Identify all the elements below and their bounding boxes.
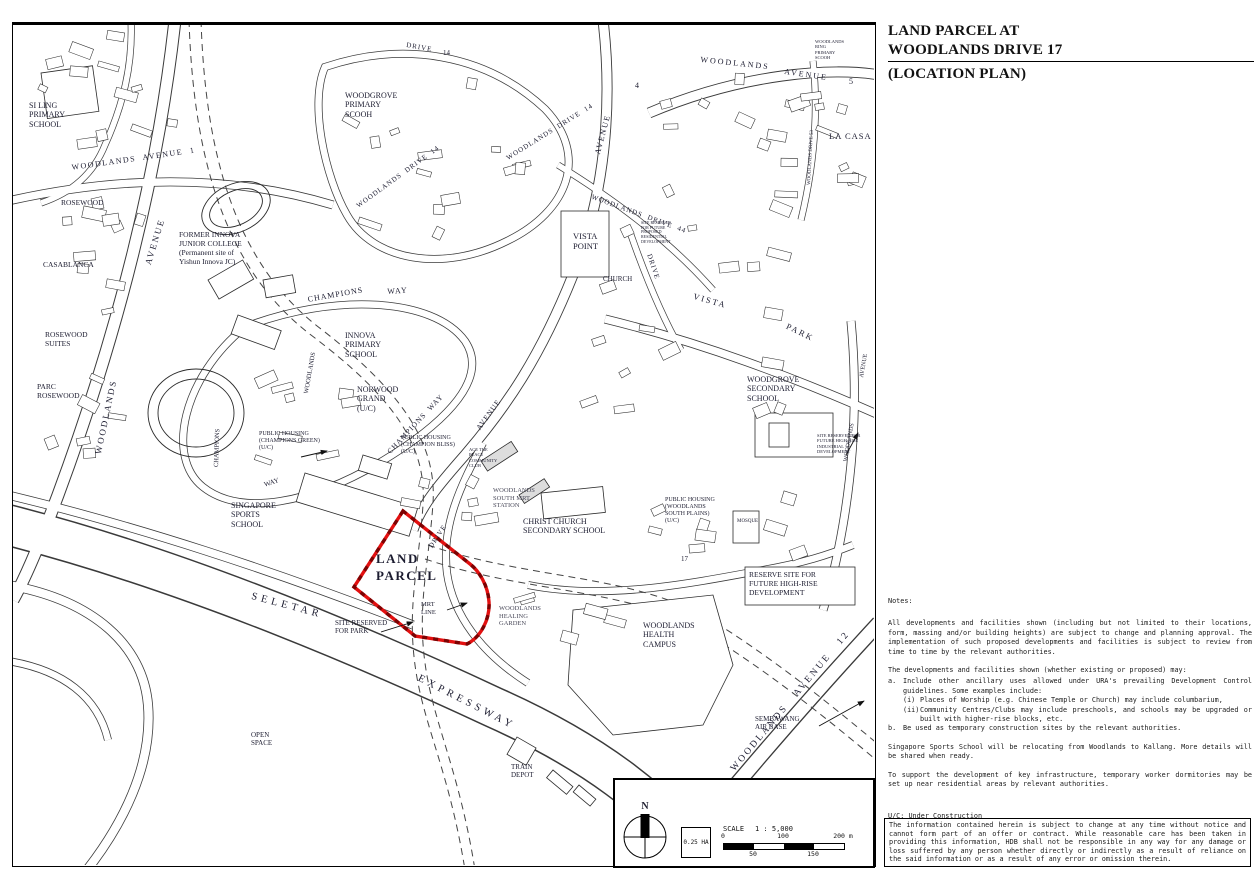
title-line2: WOODLANDS DRIVE 17 (888, 41, 1254, 62)
map-label-woodlands: WOODLANDS (93, 379, 119, 456)
map-label-woodgrove: WOODGROVE PRIMARY SCOOH (345, 91, 397, 119)
map-label-la-casa: LA CASA (829, 131, 872, 141)
map-label-land: LAND PARCEL (376, 551, 437, 585)
scale-bar (723, 843, 845, 850)
map-label-woodlands-drive-44: WOODLANDS DRIVE 44 (590, 193, 687, 235)
scale-tick-0: 0 (721, 832, 725, 840)
scale-tick-200m: 200 m (833, 832, 853, 840)
map-label-mrt: MRT LINE (421, 601, 436, 616)
map-label-vista: VISTA (692, 291, 728, 310)
map-label-14: 14 (443, 49, 450, 57)
map-label-site-reserved-for: SITE RESERVED FOR FUTURE HIGH-RISE INDUS… (817, 433, 860, 454)
map-label-si-ling: SI LING PRIMARY SCHOOL (29, 101, 65, 129)
map-label-avenue: AVENUE (784, 67, 829, 82)
map-label-woodlands: WOODLANDS SOUTH MRT STATION (493, 487, 535, 510)
map-label-singapore: SINGAPORE SPORTS SCHOOL (231, 501, 276, 529)
notes-para4: To support the development of key infras… (888, 771, 1252, 790)
map-label-public-housing: PUBLIC HOUSING (CHAMPION BLISS) (U/C) (401, 435, 455, 456)
scale-tick-150: 150 (807, 850, 819, 858)
map-label-woodlands-avenue-1: WOODLANDS AVENUE 1 (71, 146, 196, 173)
map-label-woodlands: WOODLANDS RING PRIMARY SCOOH (815, 39, 844, 60)
scale-tick-100: 100 (777, 832, 789, 840)
map-panel: SI LING PRIMARY SCHOOLWOODLANDS AVENUE 1… (12, 22, 876, 867)
map-label-woodlands: WOODLANDS HEALTH CAMPUS (643, 621, 695, 649)
location-plan-page: SI LING PRIMARY SCHOOLWOODLANDS AVENUE 1… (0, 0, 1254, 869)
notes-item-a-i: (i) Places of Worship (e.g. Chinese Temp… (903, 696, 1252, 705)
notes-item-b: b. Be used as temporary construction sit… (888, 724, 1252, 733)
disclaimer-box: The information contained herein is subj… (884, 818, 1251, 867)
map-label-woodlands-drive-14: WOODLANDS DRIVE 14 (355, 144, 441, 210)
map-label-former-innova: FORMER INNOVA JUNIOR COLLEGE (Permanent … (179, 231, 242, 266)
map-label-church: CHURCH (603, 275, 632, 283)
map-label-rosewood: ROSEWOOD (61, 199, 104, 208)
notes-para1: All developments and facilities shown (i… (888, 619, 1252, 657)
map-label-4: 4 (635, 81, 639, 90)
title-line1: LAND PARCEL AT (888, 22, 1254, 41)
parcel-area-box: 0.25 HA (681, 827, 711, 858)
map-label-drive: DRIVE (406, 41, 433, 54)
map-label-woodlands: WOODLANDS HEALING GARDEN (499, 605, 541, 628)
north-label: N (641, 801, 648, 812)
map-label-5: 5 (849, 77, 853, 86)
page-title: LAND PARCEL AT WOODLANDS DRIVE 17 (LOCAT… (888, 22, 1254, 84)
notes-para3: Singapore Sports School will be relocati… (888, 743, 1252, 762)
scale-tick-50: 50 (749, 850, 757, 858)
map-label-woodlands-drive-14: WOODLANDS DRIVE 14 (505, 102, 595, 162)
map-label-seletar: SELETAR (250, 591, 324, 622)
map-label-avenue: AVENUE (143, 217, 167, 266)
map-label-ace-the: ACE THE PLACE COMMUNITY CLUB (469, 447, 497, 468)
notes-section: Notes: All developments and facilities s… (888, 597, 1252, 830)
map-label-avenue: AVENUE (593, 114, 613, 156)
map-label-way: WAY (263, 476, 280, 489)
map-label-drive: DRIVE (645, 253, 661, 281)
map-label-parc: PARC ROSEWOOD (37, 383, 80, 401)
map-label-avenue: AVENUE (859, 353, 870, 378)
map-label-casablanca: CASABLANCA (43, 261, 94, 270)
map-label-open: OPEN SPACE (251, 731, 272, 748)
map-label-public-housing: PUBLIC HOUSING (WOODLANDS SOUTH PLAINS) … (665, 497, 715, 525)
map-label-woodlands: WOODLANDS (700, 55, 770, 72)
map-label-avenue: AVENUE (475, 398, 503, 432)
map-label-site-reserved: SITE RESERVED FOR PARK (335, 619, 387, 636)
notes-item-a: a. Include other ancillary uses allowed … (888, 677, 1252, 696)
map-label-vista: VISTA POINT (573, 231, 598, 251)
north-arrow-icon (615, 780, 677, 869)
map-label-park: PARK (785, 321, 816, 343)
map-label-norwood: NORWOOD GRAND (U/C) (357, 385, 398, 413)
map-label-woodlands-avenue-12: WOODLANDS AVENUE 12 (729, 629, 853, 774)
map-label-champions: CHAMPIONS (307, 285, 364, 304)
map-label-rosewood: ROSEWOOD SUITES (45, 331, 88, 349)
map-label-reserve-site-for: RESERVE SITE FOR FUTURE HIGH-RISE DEVELO… (749, 571, 818, 598)
map-label-sembawang: SEMBAWANG AIR BASE (755, 715, 800, 732)
map-label-expressway: EXPRESSWAY (415, 673, 517, 733)
map-label-woodlands-drive-53: WOODLANDS DRIVE 53 (807, 130, 816, 185)
notes-para2-intro: The developments and facilities shown (w… (888, 666, 1252, 675)
map-label-train: TRAIN DEPOT (511, 763, 534, 780)
map-label-woodgrove: WOODGROVE SECONDARY SCHOOL (747, 375, 799, 403)
notes-item-a-ii: (ii) Community Centres/Clubs may include… (903, 706, 1252, 725)
map-label-christ-church: CHRIST CHURCH SECONDARY SCHOOL (523, 517, 605, 536)
map-label-site-reserved: SITE RESERVED FOR FUTURE PROPOSED RESIDE… (641, 221, 671, 245)
map-labels-layer: SI LING PRIMARY SCHOOLWOODLANDS AVENUE 1… (13, 25, 875, 866)
title-line3: (LOCATION PLAN) (888, 65, 1254, 84)
map-label-way: WAY (387, 286, 408, 297)
scale-box: N 0.25 HA SCALE 1 : 5,000 0100200 m50150 (613, 778, 875, 868)
scale-label: SCALE (723, 825, 744, 833)
map-label-innova: INNOVA PRIMARY SCHOOL (345, 331, 381, 359)
notes-heading: Notes: (888, 597, 1252, 606)
map-label-drive: DRIVE (427, 523, 449, 549)
map-label-champions: CHAMPIONS (213, 429, 222, 468)
right-panel: LAND PARCEL AT WOODLANDS DRIVE 17 (LOCAT… (884, 0, 1254, 869)
map-label-woodlands: WOODLANDS (303, 352, 318, 395)
map-label-mosque: MOSQUE (737, 519, 758, 525)
map-label-17: 17 (681, 555, 688, 563)
map-label-public-housing: PUBLIC HOUSING (CHAMPIONS GREEN) (U/C) (259, 431, 320, 452)
